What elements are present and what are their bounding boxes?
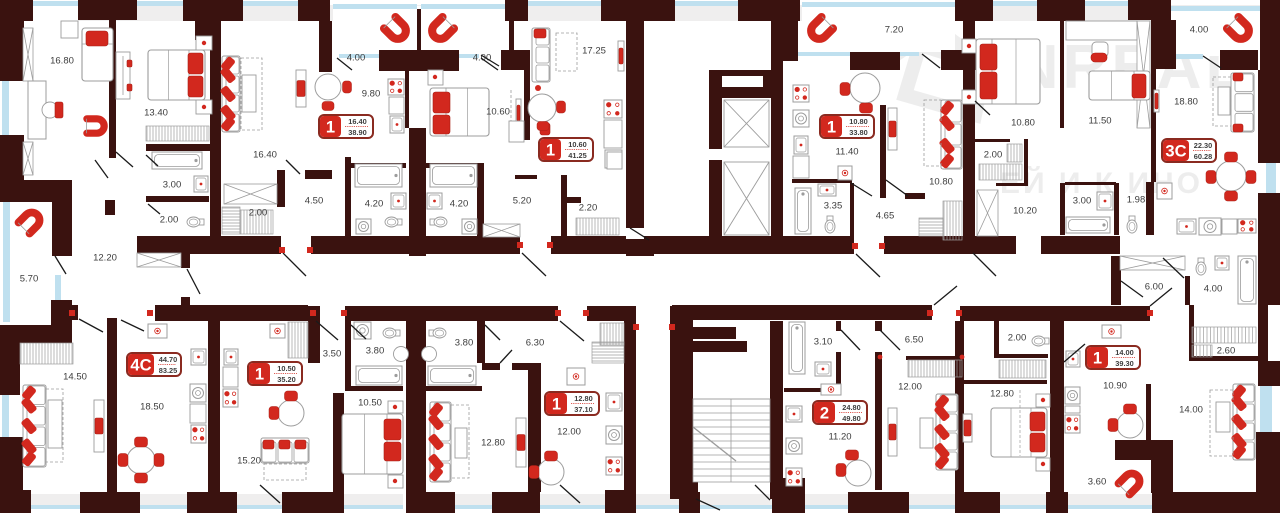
svg-text:17.25: 17.25 xyxy=(582,46,606,57)
svg-text:33.80: 33.80 xyxy=(849,128,868,137)
svg-text:10.60: 10.60 xyxy=(486,107,510,118)
svg-text:41.25: 41.25 xyxy=(568,151,587,160)
svg-text:3.80: 3.80 xyxy=(455,338,474,349)
svg-text:4.00: 4.00 xyxy=(1204,284,1223,295)
svg-text:16.40: 16.40 xyxy=(348,117,367,126)
svg-text:5.20: 5.20 xyxy=(513,196,532,207)
svg-text:12.80: 12.80 xyxy=(481,438,505,449)
svg-text:7.20: 7.20 xyxy=(885,25,904,36)
svg-text:2.00: 2.00 xyxy=(249,208,268,219)
svg-text:14.00: 14.00 xyxy=(1115,348,1134,357)
svg-text:3.80: 3.80 xyxy=(366,346,385,357)
svg-text:12.80: 12.80 xyxy=(990,389,1014,400)
svg-text:3.60: 3.60 xyxy=(1088,477,1107,488)
svg-text:4.00: 4.00 xyxy=(1190,25,1209,36)
svg-text:12.20: 12.20 xyxy=(93,253,117,264)
svg-text:38.90: 38.90 xyxy=(348,128,367,137)
svg-text:14.00: 14.00 xyxy=(1179,405,1203,416)
svg-text:10.80: 10.80 xyxy=(849,117,868,126)
svg-text:1: 1 xyxy=(255,364,264,383)
svg-text:60.28: 60.28 xyxy=(1194,152,1213,161)
svg-text:10.60: 10.60 xyxy=(568,140,587,149)
svg-text:5.70: 5.70 xyxy=(20,274,39,285)
svg-text:1: 1 xyxy=(552,394,561,413)
svg-text:12.00: 12.00 xyxy=(557,427,581,438)
svg-text:10.50: 10.50 xyxy=(277,364,296,373)
svg-text:3.00: 3.00 xyxy=(1073,196,1092,207)
svg-text:6.50: 6.50 xyxy=(905,335,924,346)
svg-text:11.50: 11.50 xyxy=(1088,116,1111,127)
svg-text:12.00: 12.00 xyxy=(898,382,922,393)
svg-text:4.00: 4.00 xyxy=(347,53,366,64)
svg-text:4.65: 4.65 xyxy=(876,211,895,222)
svg-text:24.80: 24.80 xyxy=(842,403,861,412)
svg-text:35.20: 35.20 xyxy=(277,375,296,384)
svg-text:22.30: 22.30 xyxy=(1194,141,1213,150)
svg-text:4C: 4C xyxy=(130,355,151,374)
svg-text:11.20: 11.20 xyxy=(828,432,851,443)
svg-text:39.30: 39.30 xyxy=(1115,359,1134,368)
svg-text:37.10: 37.10 xyxy=(574,405,593,414)
svg-text:15.20: 15.20 xyxy=(237,456,261,467)
svg-text:1: 1 xyxy=(326,117,335,136)
svg-text:2.00: 2.00 xyxy=(984,150,1003,161)
svg-text:10.50: 10.50 xyxy=(358,398,382,409)
svg-text:10.20: 10.20 xyxy=(1013,206,1037,217)
svg-text:2: 2 xyxy=(820,403,829,422)
svg-text:2.20: 2.20 xyxy=(579,203,598,214)
svg-text:9.80: 9.80 xyxy=(362,89,381,100)
svg-text:10.90: 10.90 xyxy=(1103,381,1127,392)
svg-text:1.98: 1.98 xyxy=(1127,195,1146,206)
svg-text:4.20: 4.20 xyxy=(450,199,469,210)
svg-text:6.00: 6.00 xyxy=(1145,282,1164,293)
svg-text:4.20: 4.20 xyxy=(365,199,384,210)
svg-text:44.70: 44.70 xyxy=(159,355,178,364)
svg-text:1: 1 xyxy=(1093,348,1102,367)
svg-text:3.00: 3.00 xyxy=(163,180,182,191)
svg-text:12.80: 12.80 xyxy=(574,394,593,403)
svg-text:10.80: 10.80 xyxy=(1011,118,1035,129)
svg-text:49.80: 49.80 xyxy=(842,414,861,423)
svg-text:1: 1 xyxy=(546,140,555,159)
svg-text:16.80: 16.80 xyxy=(50,56,74,67)
svg-text:13.40: 13.40 xyxy=(144,108,168,119)
svg-text:11.40: 11.40 xyxy=(835,147,858,158)
svg-text:10.80: 10.80 xyxy=(929,177,953,188)
svg-text:14.50: 14.50 xyxy=(63,372,87,383)
svg-text:3.35: 3.35 xyxy=(824,201,843,212)
svg-text:4.50: 4.50 xyxy=(305,196,324,207)
svg-text:1: 1 xyxy=(827,117,836,136)
svg-text:18.50: 18.50 xyxy=(140,402,164,413)
svg-text:18.80: 18.80 xyxy=(1174,97,1198,108)
svg-text:2.00: 2.00 xyxy=(1008,333,1027,344)
svg-text:83.25: 83.25 xyxy=(159,366,178,375)
svg-text:3.50: 3.50 xyxy=(323,349,342,360)
svg-text:3.10: 3.10 xyxy=(814,337,833,348)
svg-text:6.30: 6.30 xyxy=(526,338,545,349)
svg-text:3C: 3C xyxy=(1165,141,1186,160)
svg-text:2.60: 2.60 xyxy=(1217,346,1236,357)
svg-text:16.40: 16.40 xyxy=(253,150,277,161)
svg-text:2.00: 2.00 xyxy=(160,215,179,226)
